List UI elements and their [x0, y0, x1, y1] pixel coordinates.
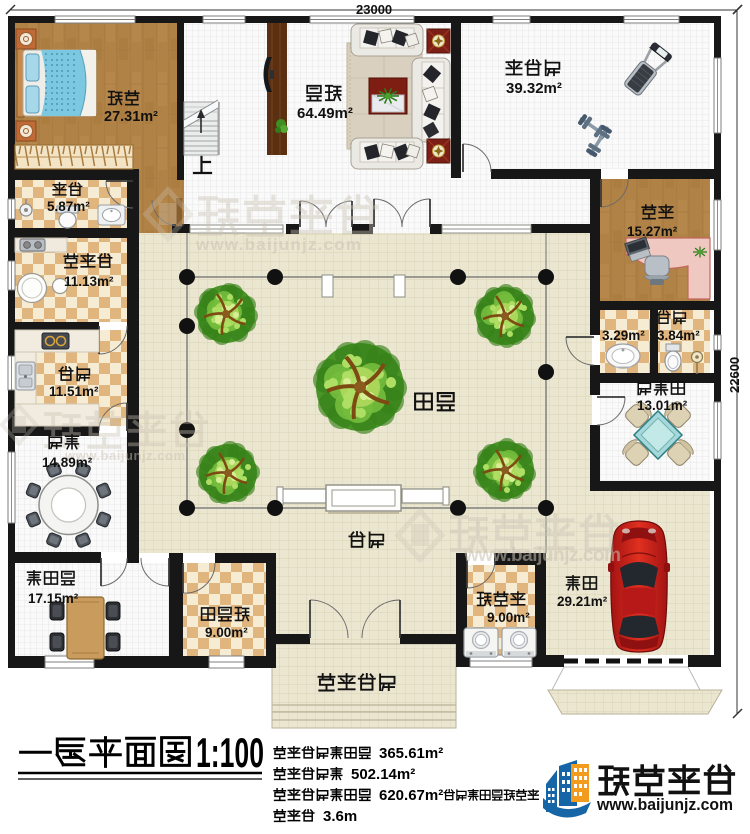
svg-text:23000: 23000 — [356, 2, 392, 17]
svg-text:www.baijunjz.com: www.baijunjz.com — [463, 545, 621, 566]
svg-text:3.84m²: 3.84m² — [657, 328, 700, 343]
svg-text:1:100: 1:100 — [196, 729, 264, 776]
svg-text:15.27m²: 15.27m² — [627, 224, 678, 239]
svg-text:14.89m²: 14.89m² — [42, 455, 93, 470]
svg-text:17.15m²: 17.15m² — [28, 591, 79, 606]
svg-text:11.13m²: 11.13m² — [64, 274, 114, 289]
svg-text:22600: 22600 — [727, 357, 742, 393]
svg-text:620.67m²: 620.67m² — [379, 787, 443, 804]
svg-text:9.00m²: 9.00m² — [487, 610, 530, 625]
svg-text:64.49m²: 64.49m² — [297, 105, 353, 122]
svg-text:www.baijunjz.com: www.baijunjz.com — [596, 795, 733, 814]
svg-text:29.21m²: 29.21m² — [557, 594, 608, 609]
svg-text:39.32m²: 39.32m² — [506, 80, 562, 97]
svg-text:11.51m²: 11.51m² — [49, 384, 99, 399]
svg-text:5.87m²: 5.87m² — [47, 199, 90, 214]
svg-text:3.29m²: 3.29m² — [602, 328, 645, 343]
svg-text:3.6m: 3.6m — [323, 808, 357, 825]
svg-text:9.00m²: 9.00m² — [205, 625, 248, 640]
svg-text:365.61m²: 365.61m² — [379, 745, 443, 762]
svg-text:www.baijunjz.com: www.baijunjz.com — [195, 235, 361, 254]
svg-text:27.31m²: 27.31m² — [104, 109, 158, 125]
svg-text:13.01m²: 13.01m² — [637, 398, 688, 413]
svg-text:502.14m²: 502.14m² — [351, 766, 415, 783]
